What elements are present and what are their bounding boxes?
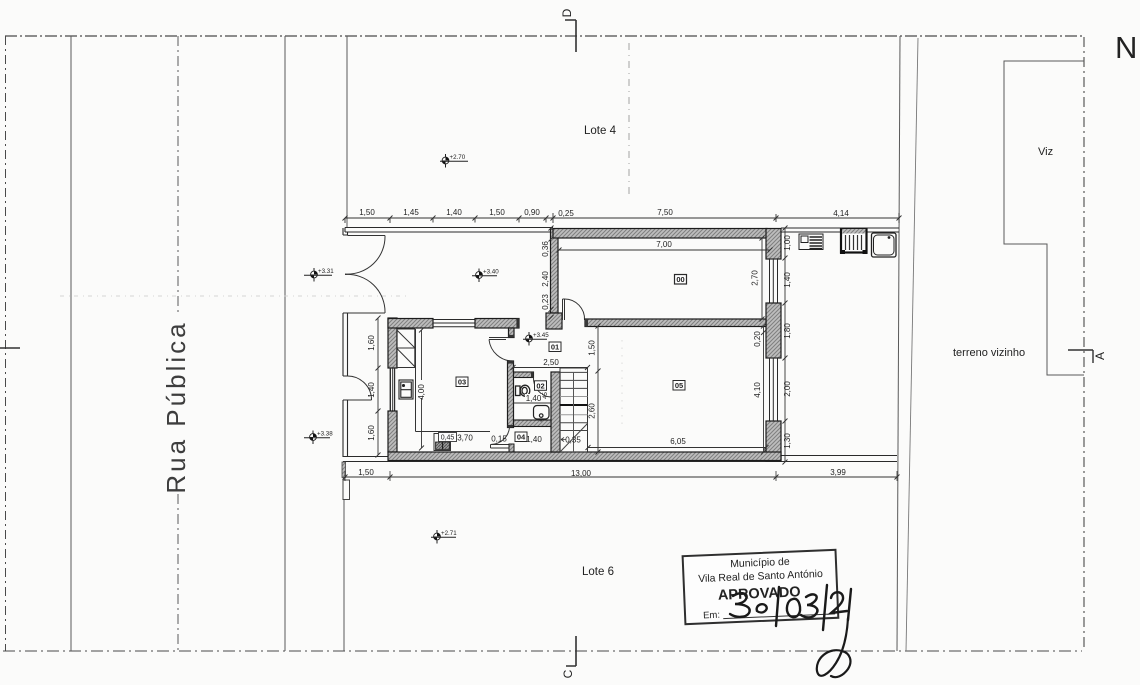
svg-text:1,40: 1,40: [526, 394, 542, 403]
svg-text:A: A: [1093, 352, 1107, 360]
svg-text:6,05: 6,05: [670, 437, 686, 446]
svg-text:0,36: 0,36: [541, 241, 550, 257]
svg-text:7,00: 7,00: [656, 240, 672, 249]
svg-text:0,25: 0,25: [558, 209, 574, 218]
svg-text:02: 02: [536, 381, 544, 390]
svg-text:terreno vizinho: terreno vizinho: [953, 347, 1025, 359]
svg-text:45: 45: [543, 392, 549, 399]
svg-text:4,14: 4,14: [833, 209, 849, 218]
svg-text:1,40: 1,40: [367, 382, 376, 398]
svg-text:Viz: Viz: [1038, 146, 1053, 158]
svg-text:1,50: 1,50: [359, 208, 375, 217]
svg-text:+3.38: +3.38: [317, 430, 333, 437]
svg-text:0,45: 0,45: [441, 435, 455, 442]
svg-text:01: 01: [551, 343, 559, 352]
svg-text:+3.45: +3.45: [533, 332, 549, 339]
svg-text:1,50: 1,50: [588, 340, 597, 356]
svg-text:1,45: 1,45: [403, 208, 419, 217]
svg-text:04: 04: [517, 433, 526, 442]
svg-text:1,40: 1,40: [783, 272, 792, 288]
svg-text:1,60: 1,60: [367, 425, 376, 441]
svg-text:N: N: [1115, 30, 1137, 65]
svg-text:0,20: 0,20: [753, 331, 762, 347]
svg-text:2,00: 2,00: [783, 381, 792, 397]
svg-text:1,60: 1,60: [367, 335, 376, 351]
svg-text:0,23: 0,23: [541, 294, 550, 310]
svg-text:4,00: 4,00: [417, 384, 426, 400]
svg-text:Lote 4: Lote 4: [584, 125, 617, 137]
svg-text:03: 03: [458, 378, 466, 387]
svg-text:0,15: 0,15: [491, 435, 507, 444]
svg-text:Município de: Município de: [730, 556, 790, 570]
svg-text:3,99: 3,99: [830, 468, 846, 477]
svg-text:1,50: 1,50: [489, 208, 505, 217]
svg-text:1,40: 1,40: [526, 435, 542, 444]
svg-text:13,00: 13,00: [571, 469, 592, 478]
svg-text:1,40: 1,40: [446, 208, 462, 217]
svg-text:1,80: 1,80: [783, 323, 792, 339]
svg-text:Em:: Em:: [703, 610, 720, 622]
svg-text:C: C: [561, 669, 575, 678]
svg-text:7,50: 7,50: [657, 208, 673, 217]
svg-text:2,60: 2,60: [588, 403, 597, 419]
svg-text:+3.31: +3.31: [318, 268, 334, 275]
svg-text:2,70: 2,70: [751, 270, 760, 286]
svg-text:0,35: 0,35: [565, 436, 581, 445]
svg-text:D: D: [560, 8, 574, 17]
svg-text:2,50: 2,50: [543, 358, 559, 367]
svg-text:4,10: 4,10: [753, 382, 762, 398]
svg-text:05: 05: [675, 381, 683, 390]
svg-text:2,40: 2,40: [541, 271, 550, 287]
svg-text:+2.70: +2.70: [450, 154, 466, 161]
svg-text:+2.71: +2.71: [441, 530, 457, 537]
svg-text:Lote 6: Lote 6: [582, 566, 614, 578]
svg-text:00: 00: [676, 275, 684, 284]
svg-text:1,30: 1,30: [783, 433, 792, 449]
svg-text:1,00: 1,00: [783, 235, 792, 251]
svg-text:3,70: 3,70: [457, 434, 473, 443]
svg-text:1,50: 1,50: [358, 468, 374, 477]
svg-text:Rua Pública: Rua Pública: [161, 320, 191, 493]
svg-text:0,90: 0,90: [524, 208, 540, 217]
svg-text:+3.40: +3.40: [483, 268, 499, 275]
